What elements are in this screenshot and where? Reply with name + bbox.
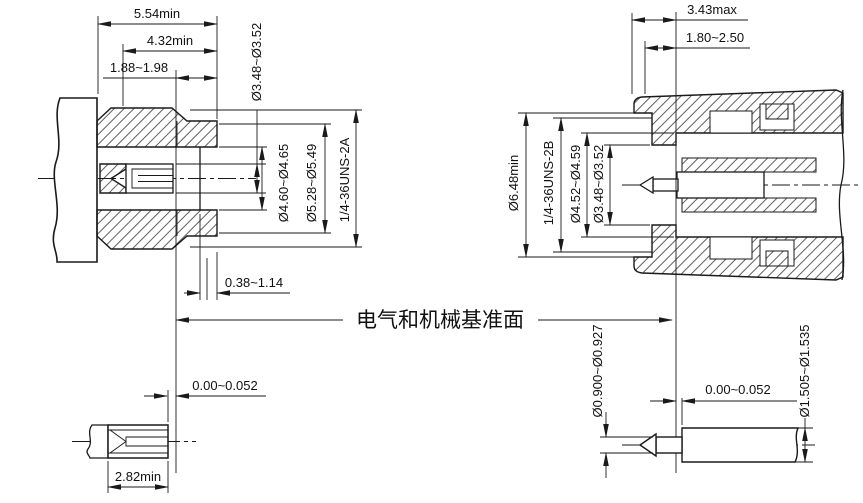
pin-holder [677, 172, 764, 198]
dim-label-sleeve-od-left: Ø3.48~Ø3.52 [249, 23, 264, 101]
dim-label-contact-setback-left: 0.00~0.052 [192, 378, 257, 393]
left-nut-lower-section [97, 210, 217, 249]
pin-detail-shaft [682, 428, 798, 462]
set-screw-top [766, 104, 788, 119]
left-nut-upper-section [97, 108, 217, 147]
dim-label-outer-od: Ø6.48min [506, 155, 521, 211]
pin-tip-cone [640, 177, 653, 193]
dim-label-bore-id-right: Ø4.52~Ø4.59 [568, 145, 583, 223]
center-pin [653, 179, 678, 191]
left-connector-view [38, 98, 256, 262]
left-socket-sleeve [126, 164, 173, 193]
dim-label-thread-length: 4.32min [147, 33, 193, 48]
inner-clamp-top [682, 158, 816, 172]
dim-label-engagement: 1.80~2.50 [686, 30, 744, 45]
right-pin-detail: Ø0.900~Ø0.927 0.00~0.052 Ø1.505~Ø1.535 [590, 325, 815, 478]
left-body-block [53, 98, 97, 262]
dim-label-pin-od: Ø0.900~Ø0.927 [590, 325, 605, 418]
dim-label-shaft-od: Ø1.505~Ø1.535 [797, 325, 812, 418]
pin-detail-pin [656, 437, 682, 453]
dim-label-socket-depth: 2.82min [115, 469, 161, 484]
left-contact-detail: 0.00~0.052 2.82min [72, 378, 266, 493]
dim-label-overall-length: 5.54min [134, 6, 180, 21]
inner-clamp-bottom [682, 198, 816, 212]
dim-label-dielectric-recess: 0.38~1.14 [225, 275, 283, 290]
socket-detail-break [87, 425, 108, 458]
thread-spec-label-left: 1/4-36UNS-2A [337, 137, 352, 222]
right-connector-view [622, 90, 858, 280]
set-screw-bottom [766, 251, 788, 266]
dim-label-bore-id-left: Ø4.60~Ø4.65 [276, 144, 291, 222]
reference-plane-label: 电气和机械基准面 [356, 308, 524, 332]
thread-spec-label-right: 1/4-36UNS-2B [541, 141, 556, 226]
dim-label-pin-setback: 0.00~0.052 [705, 382, 770, 397]
dim-label-front-to-ref: 1.88~1.98 [110, 60, 168, 75]
dim-label-sleeve-id-right: Ø3.48~Ø3.52 [591, 145, 606, 223]
connector-interface-drawing: 5.54min 4.32min 1.88~1.98 Ø3.48~Ø3.52 Ø4… [0, 0, 863, 503]
dim-label-front-to-ref-max: 3.43max [687, 2, 737, 17]
drawing-canvas: 5.54min 4.32min 1.88~1.98 Ø3.48~Ø3.52 Ø4… [0, 0, 863, 503]
dim-label-counterbore-id-left: Ø5.28~Ø5.49 [304, 144, 319, 222]
